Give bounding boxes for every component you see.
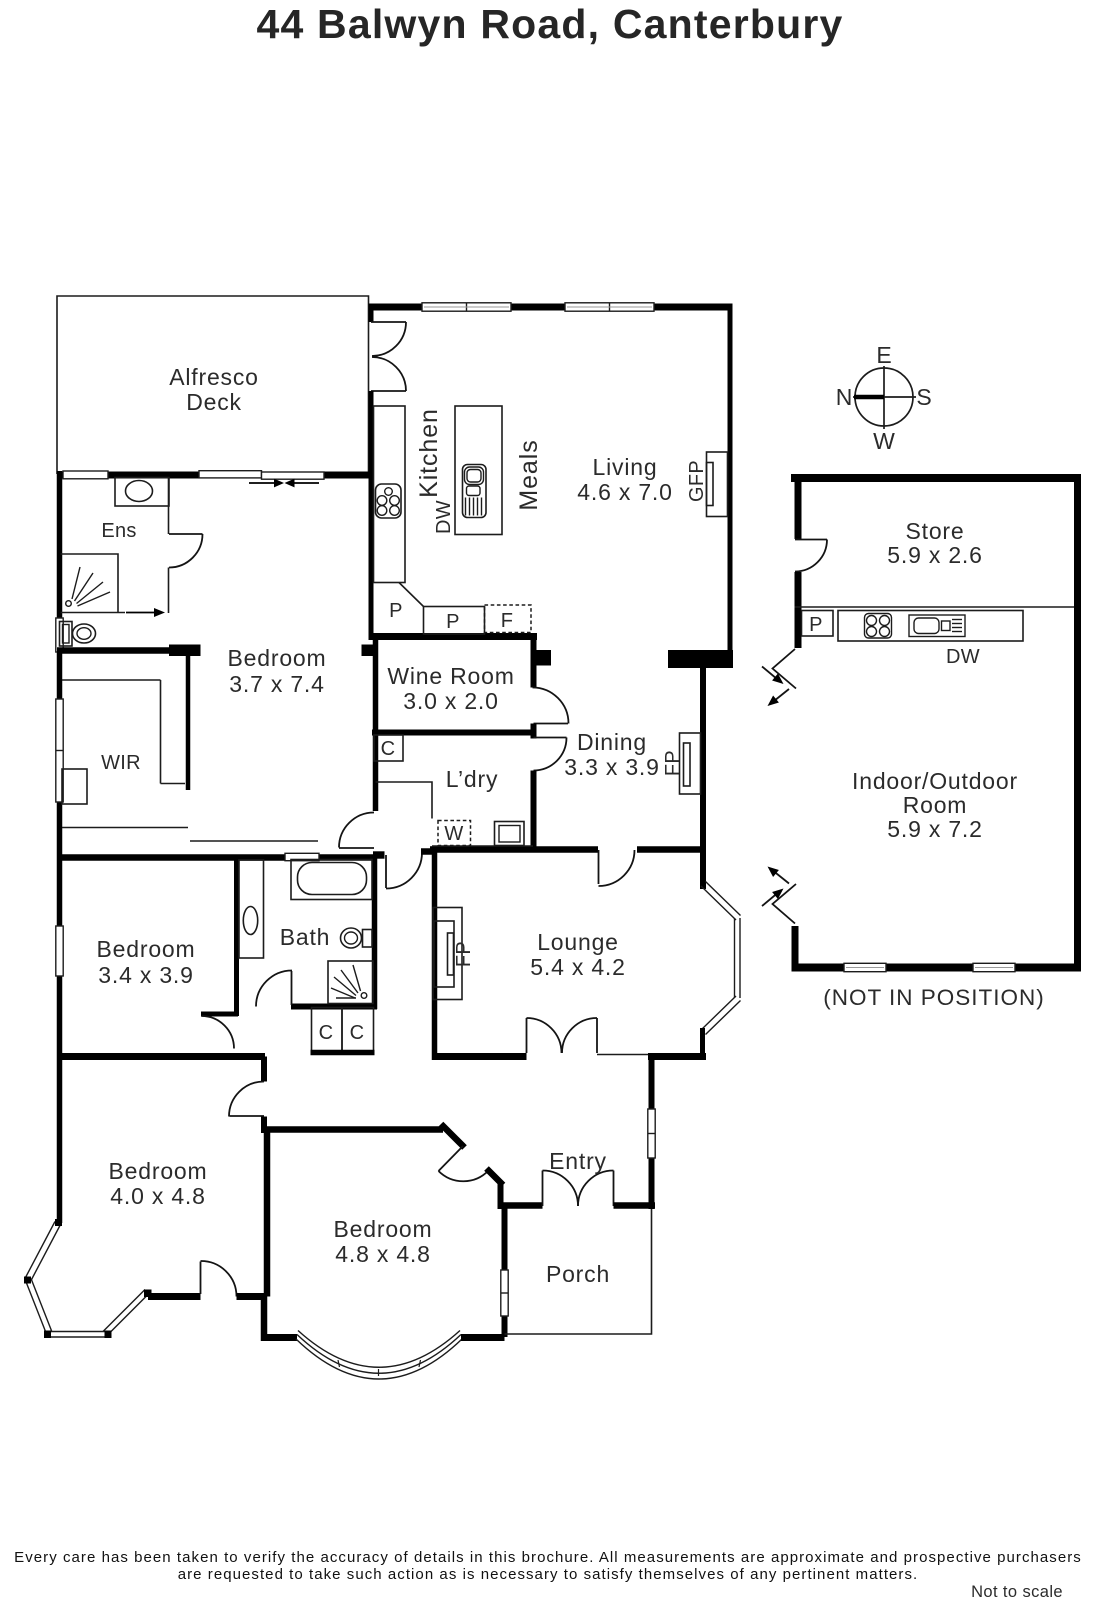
- svg-text:FP: FP: [453, 941, 475, 967]
- svg-text:C: C: [350, 1022, 365, 1044]
- svg-text:Meals: Meals: [515, 439, 543, 510]
- svg-text:Dining: Dining: [577, 729, 647, 755]
- svg-text:P: P: [446, 611, 460, 633]
- svg-text:Room: Room: [903, 792, 968, 818]
- svg-text:Kitchen: Kitchen: [415, 408, 443, 498]
- svg-text:Not to scale: Not to scale: [971, 1583, 1063, 1600]
- svg-text:Store: Store: [906, 518, 965, 544]
- svg-text:are requested to take such act: are requested to take such action as is …: [178, 1566, 919, 1583]
- svg-text:Bedroom: Bedroom: [97, 936, 196, 962]
- svg-text:5.9 x 7.2: 5.9 x 7.2: [887, 816, 982, 842]
- svg-text:F: F: [501, 610, 514, 632]
- svg-text:WIR: WIR: [101, 752, 141, 774]
- svg-text:Bedroom: Bedroom: [109, 1158, 208, 1184]
- svg-text:N: N: [836, 384, 853, 410]
- svg-text:Lounge: Lounge: [537, 929, 619, 955]
- svg-text:Deck: Deck: [186, 389, 242, 415]
- svg-text:5.4 x 4.2: 5.4 x 4.2: [530, 954, 625, 980]
- svg-text:(NOT IN POSITION): (NOT IN POSITION): [823, 985, 1045, 1010]
- svg-text:Alfresco: Alfresco: [169, 364, 258, 390]
- svg-text:Bedroom: Bedroom: [334, 1216, 433, 1242]
- svg-text:Bedroom: Bedroom: [228, 645, 327, 671]
- svg-text:5.9 x 2.6: 5.9 x 2.6: [887, 542, 982, 568]
- svg-text:3.0 x 2.0: 3.0 x 2.0: [403, 688, 498, 714]
- svg-text:W: W: [444, 823, 463, 845]
- svg-text:44 Balwyn Road, Canterbury: 44 Balwyn Road, Canterbury: [256, 1, 843, 47]
- svg-text:Living: Living: [593, 454, 658, 480]
- svg-text:3.3 x 3.9: 3.3 x 3.9: [564, 754, 659, 780]
- svg-text:S: S: [916, 384, 931, 410]
- svg-text:3.4 x 3.9: 3.4 x 3.9: [98, 962, 193, 988]
- svg-text:E: E: [876, 342, 891, 368]
- svg-text:C: C: [381, 738, 396, 760]
- svg-text:Indoor/Outdoor: Indoor/Outdoor: [852, 768, 1018, 794]
- svg-text:Bath: Bath: [280, 924, 331, 950]
- svg-text:W: W: [873, 428, 895, 454]
- svg-text:4.6 x 7.0: 4.6 x 7.0: [577, 479, 672, 505]
- svg-text:4.0 x 4.8: 4.0 x 4.8: [110, 1183, 205, 1209]
- svg-text:Entry: Entry: [549, 1148, 607, 1174]
- svg-text:Porch: Porch: [546, 1261, 610, 1287]
- svg-text:C: C: [319, 1022, 334, 1044]
- svg-text:L’dry: L’dry: [446, 766, 499, 792]
- svg-text:3.7 x 7.4: 3.7 x 7.4: [229, 671, 324, 697]
- svg-text:P: P: [809, 614, 823, 636]
- svg-text:Every care has been taken to v: Every care has been taken to verify the …: [14, 1549, 1082, 1566]
- svg-text:GFP: GFP: [686, 460, 708, 502]
- svg-text:DW: DW: [946, 646, 980, 668]
- svg-text:4.8 x 4.8: 4.8 x 4.8: [335, 1241, 430, 1267]
- svg-text:P: P: [389, 600, 403, 622]
- svg-text:Ens: Ens: [101, 520, 136, 542]
- svg-text:Wine Room: Wine Room: [387, 663, 514, 689]
- svg-text:DW: DW: [433, 500, 455, 534]
- svg-text:FP: FP: [662, 750, 684, 776]
